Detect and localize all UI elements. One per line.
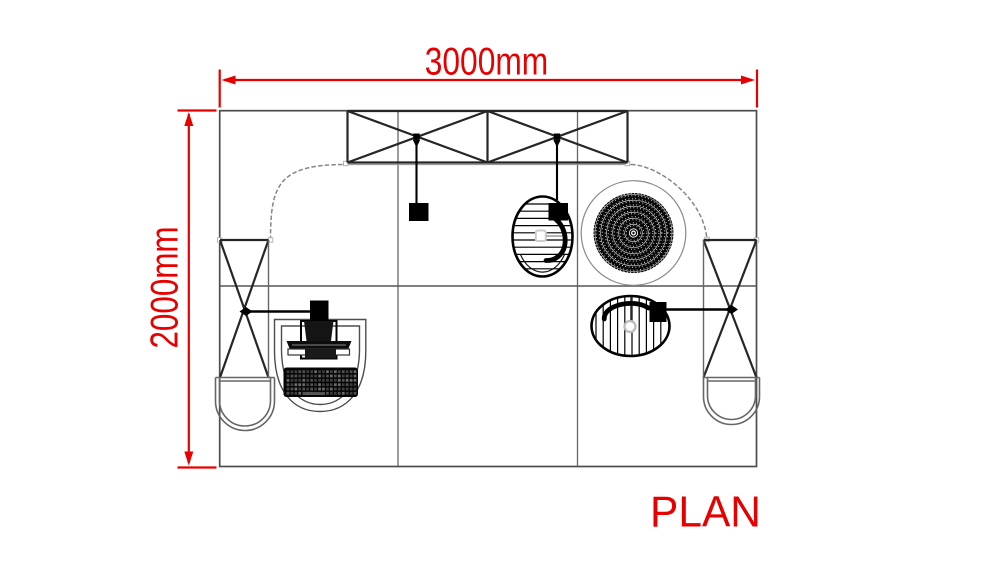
svg-text:2000mm: 2000mm (144, 226, 187, 348)
svg-text:3000mm: 3000mm (425, 41, 549, 84)
svg-text:PLAN: PLAN (650, 488, 761, 537)
